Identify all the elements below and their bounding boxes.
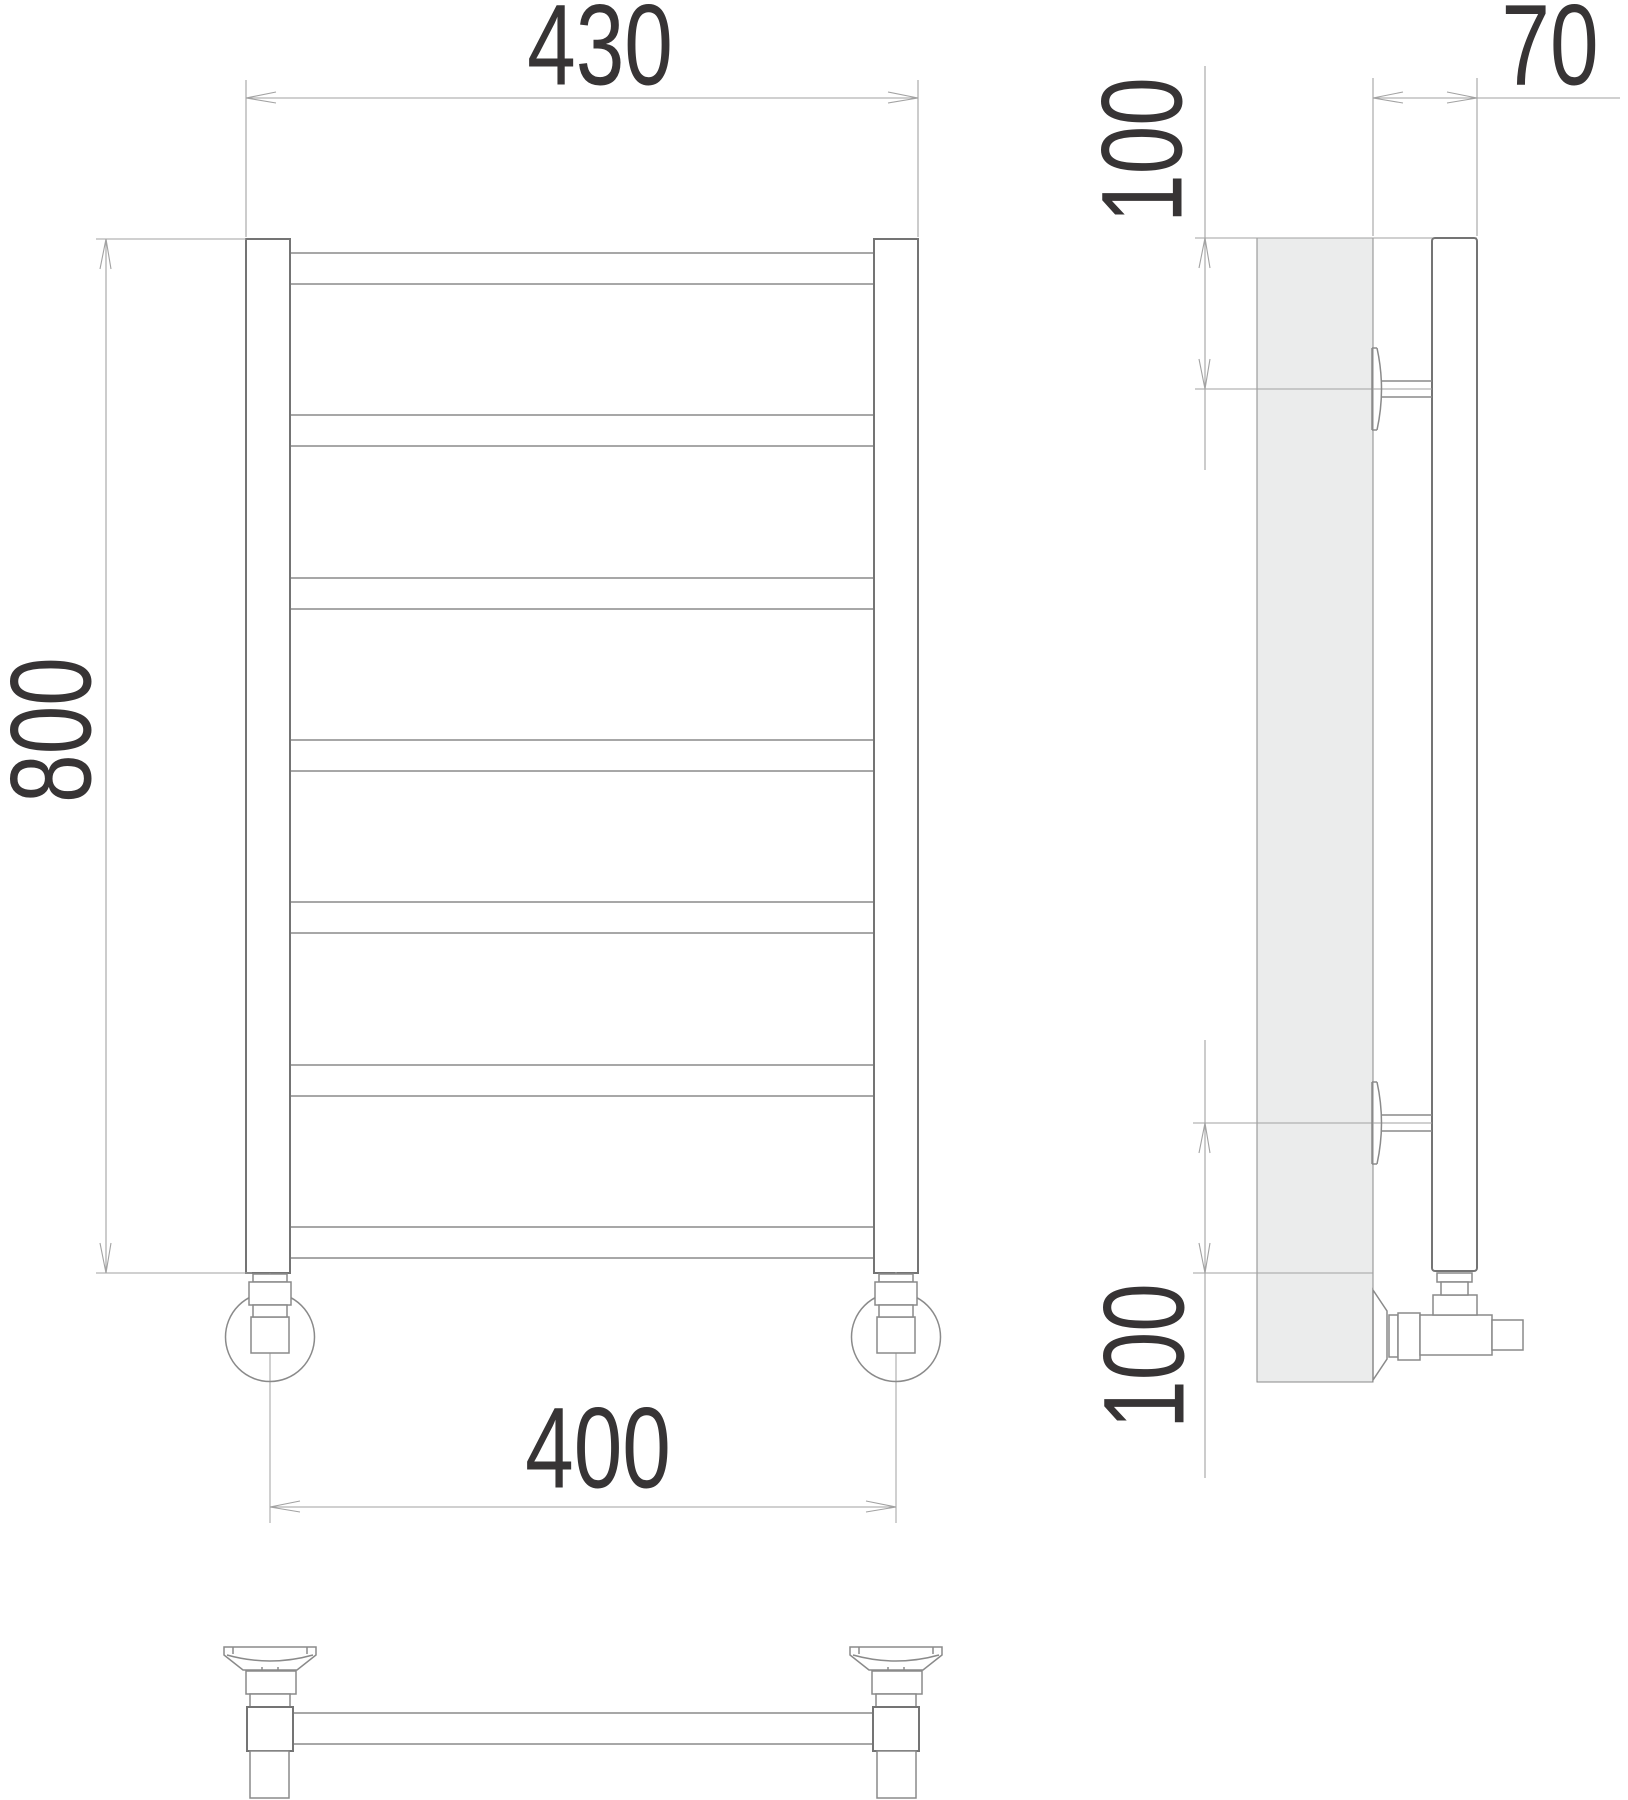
towel-bar — [290, 415, 874, 446]
wall-plate — [224, 1647, 316, 1670]
wall-plate — [850, 1647, 942, 1670]
valve-stem — [1433, 1295, 1477, 1315]
right-valve-collar — [879, 1274, 913, 1282]
bottom-view-bar — [293, 1713, 873, 1744]
dim-label-spacing: 400 — [525, 1392, 671, 1507]
dim-label-width: 430 — [527, 0, 673, 104]
tube-collar — [1441, 1282, 1468, 1295]
right-valve-collar — [875, 1282, 917, 1305]
left-post — [246, 239, 290, 1273]
wall-escutcheon — [1373, 1290, 1387, 1380]
valve-tee-body — [1420, 1315, 1492, 1355]
valve-pipe — [1398, 1313, 1420, 1360]
right-valve-collar — [879, 1305, 913, 1317]
side-view — [1193, 66, 1620, 1478]
bottom-view — [224, 1647, 942, 1798]
post-section — [873, 1707, 919, 1751]
right-valve — [852, 1272, 941, 1523]
towel-bar — [290, 902, 874, 933]
bracket-collar — [246, 1671, 296, 1694]
left-valve — [226, 1273, 315, 1523]
towel-bar — [290, 1227, 874, 1258]
bracket-collar — [250, 1694, 290, 1707]
dim-label-wall-offset: 70 — [1501, 0, 1598, 104]
left-valve-body — [251, 1317, 289, 1353]
wall-section — [1257, 238, 1373, 1382]
bracket-collar — [876, 1694, 916, 1707]
towel-rail-drawing — [0, 0, 1628, 1800]
dim-label-bottom-bracket: 100 — [1088, 1283, 1203, 1429]
drawing-canvas: 430 800 400 70 100 100 — [0, 0, 1628, 1800]
left-valve-collar — [253, 1305, 287, 1317]
side-post-tube — [1432, 238, 1477, 1271]
side-valve-assembly — [1373, 1273, 1523, 1380]
towel-bar — [290, 578, 874, 609]
towel-bar — [290, 253, 874, 284]
towel-bar — [290, 1065, 874, 1096]
valve-pipe-collar — [1389, 1315, 1398, 1357]
left-valve-collar — [249, 1282, 291, 1305]
dim-height-800 — [96, 239, 252, 1273]
bracket-collar — [872, 1671, 922, 1694]
towel-bar — [290, 740, 874, 771]
valve-section — [877, 1751, 916, 1798]
front-view — [96, 80, 941, 1523]
left-valve-collar — [253, 1274, 287, 1282]
valve-pipe-right — [1492, 1320, 1523, 1350]
towel-bars — [290, 253, 874, 1258]
tube-collar — [1437, 1273, 1472, 1282]
post-section — [247, 1707, 293, 1751]
right-valve-body — [877, 1317, 915, 1353]
valve-section — [250, 1751, 289, 1798]
dim-label-top-bracket: 100 — [1086, 77, 1201, 223]
dim-label-height: 800 — [0, 657, 110, 803]
right-post — [874, 239, 918, 1273]
